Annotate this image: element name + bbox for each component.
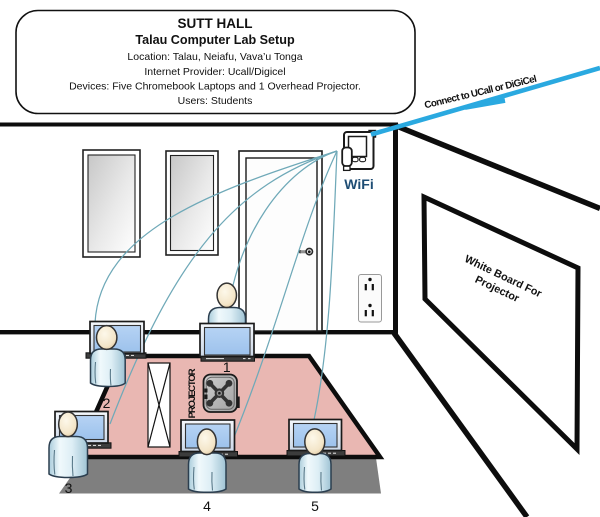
svg-text:5: 5 <box>311 498 319 514</box>
svg-text:Internet Provider: Ucall/Digic: Internet Provider: Ucall/Digicel <box>144 66 285 78</box>
svg-text:4: 4 <box>203 498 211 514</box>
svg-text:Location: Talau, Neiafu, Vava’: Location: Talau, Neiafu, Vava’u Tonga <box>127 51 302 63</box>
svg-text:2: 2 <box>103 395 111 411</box>
svg-text:WiFi: WiFi <box>344 176 373 192</box>
svg-text:3: 3 <box>65 480 73 496</box>
svg-text:Talau Computer Lab Setup: Talau Computer Lab Setup <box>135 33 295 47</box>
svg-text:Devices: Five Chromebook Lapto: Devices: Five Chromebook Laptops and 1 O… <box>69 81 361 93</box>
svg-text:1: 1 <box>223 359 231 375</box>
svg-text:SUTT HALL: SUTT HALL <box>178 16 253 31</box>
svg-text:PROJECTOR: PROJECTOR <box>187 368 198 418</box>
svg-text:Users: Students: Users: Students <box>178 95 253 107</box>
